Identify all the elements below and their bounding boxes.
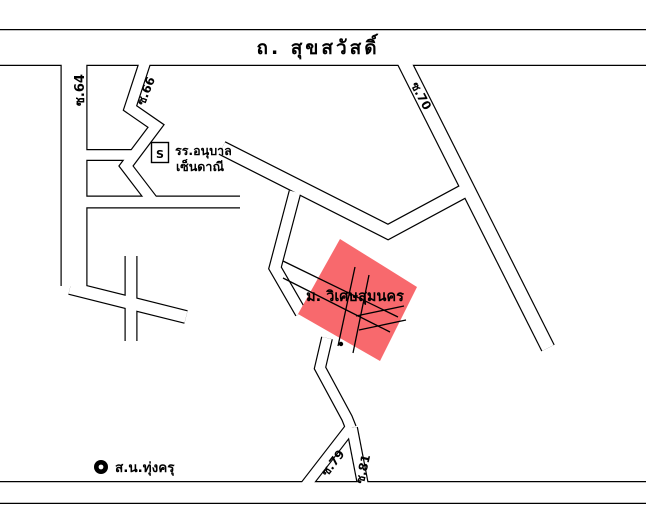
road-casings — [0, 38, 646, 493]
hand-drawn-map: S รร.อนุบาล เซ็นดาณี ส.น.ทุ่งครุ ถ. สุขส… — [0, 0, 646, 508]
school-name-line2: เซ็นดาณี — [176, 159, 224, 174]
police-dot-hole — [99, 465, 104, 470]
inner-lane-dot — [339, 342, 343, 346]
road-fills — [0, 38, 646, 493]
road-stem-fill — [320, 338, 351, 428]
school-name-line1: รร.อนุบาล — [175, 143, 232, 159]
school-marker: S รร.อนุบาล เซ็นดาณี — [152, 143, 232, 175]
police-station-label: ส.น.ทุ่งครุ — [115, 460, 175, 476]
police-station-marker: ส.น.ทุ่งครุ — [94, 460, 175, 476]
village-label: ม. วิเศษสุมนคร — [306, 288, 404, 305]
main-road-title: ถ. สุขสวัสดิ์ — [256, 33, 379, 60]
road-middle-diagonal-fill — [222, 148, 466, 232]
soi70-label: ซ.70 — [408, 80, 434, 113]
school-box-letter: S — [156, 148, 164, 161]
map-canvas: S รร.อนุบาล เซ็นดาณี ส.น.ทุ่งครุ ถ. สุขส… — [0, 0, 646, 508]
soi64-label: ซ.64 — [73, 74, 88, 106]
